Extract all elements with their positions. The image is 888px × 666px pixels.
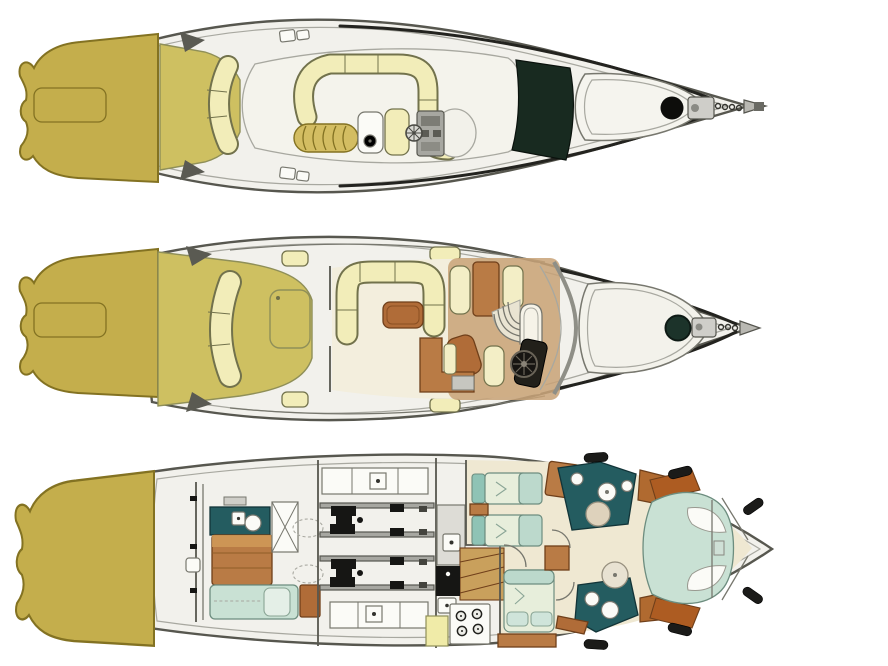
berth-pillow [264,588,290,616]
hatch-x-brace [272,502,298,552]
main-swim-platform [19,249,158,397]
foredeck-hatch [666,316,691,341]
flybridge-steering-wheel [406,125,422,141]
stove [450,604,490,644]
hinge [190,496,197,501]
transom-locker [186,558,200,572]
bow-sunpad [575,73,704,140]
headboard-console [714,541,724,555]
foredeck-hatch [661,97,684,120]
ribbed-sunlounger [294,124,358,152]
main-steering-wheel [511,351,537,377]
hinge [190,544,197,549]
side-pad [430,398,460,412]
master-cabin [643,470,748,628]
crew-berth [212,535,272,585]
tv-cabinet [473,262,499,316]
yacht-floorplan [0,0,888,666]
side-pad [282,392,308,407]
flybridge-deck [19,20,766,193]
crew-cabinet [300,585,320,617]
desk-basin [245,515,261,531]
galley-counter [426,616,448,646]
galley-sink [436,566,460,596]
main-deck [19,237,760,420]
dark-windscreen [512,60,573,160]
lower-swim-platform [15,471,154,646]
washbasin [571,473,583,485]
twin-bed-1 [472,473,542,504]
bed-cabinet [498,634,556,647]
armchair [450,266,470,314]
shower [586,502,610,526]
cabinet [545,546,569,570]
twin-bed-2 [472,515,542,546]
shelf [224,497,246,505]
bed-pillow [507,612,528,626]
arched-door [520,304,542,344]
flybridge-swim-platform [19,34,158,182]
side-pad [282,251,308,266]
washbasin [622,481,633,492]
workbench-bottom [330,602,428,628]
table-fitting [276,296,280,300]
settee-berth [210,585,298,619]
toilet [602,602,619,619]
lower-deck [15,452,772,650]
wet-bar [358,112,383,153]
coffee-table [383,302,423,328]
hinge [190,588,197,593]
yacht-deck-plans [0,0,888,666]
workbench-top [322,468,428,494]
washbasin [585,592,599,606]
staircase [460,548,504,600]
nightstand [470,504,488,515]
cockpit-table [270,290,310,348]
main-helm-seat [484,346,504,386]
bed-pillow [531,612,552,626]
bed-foot [504,570,554,584]
